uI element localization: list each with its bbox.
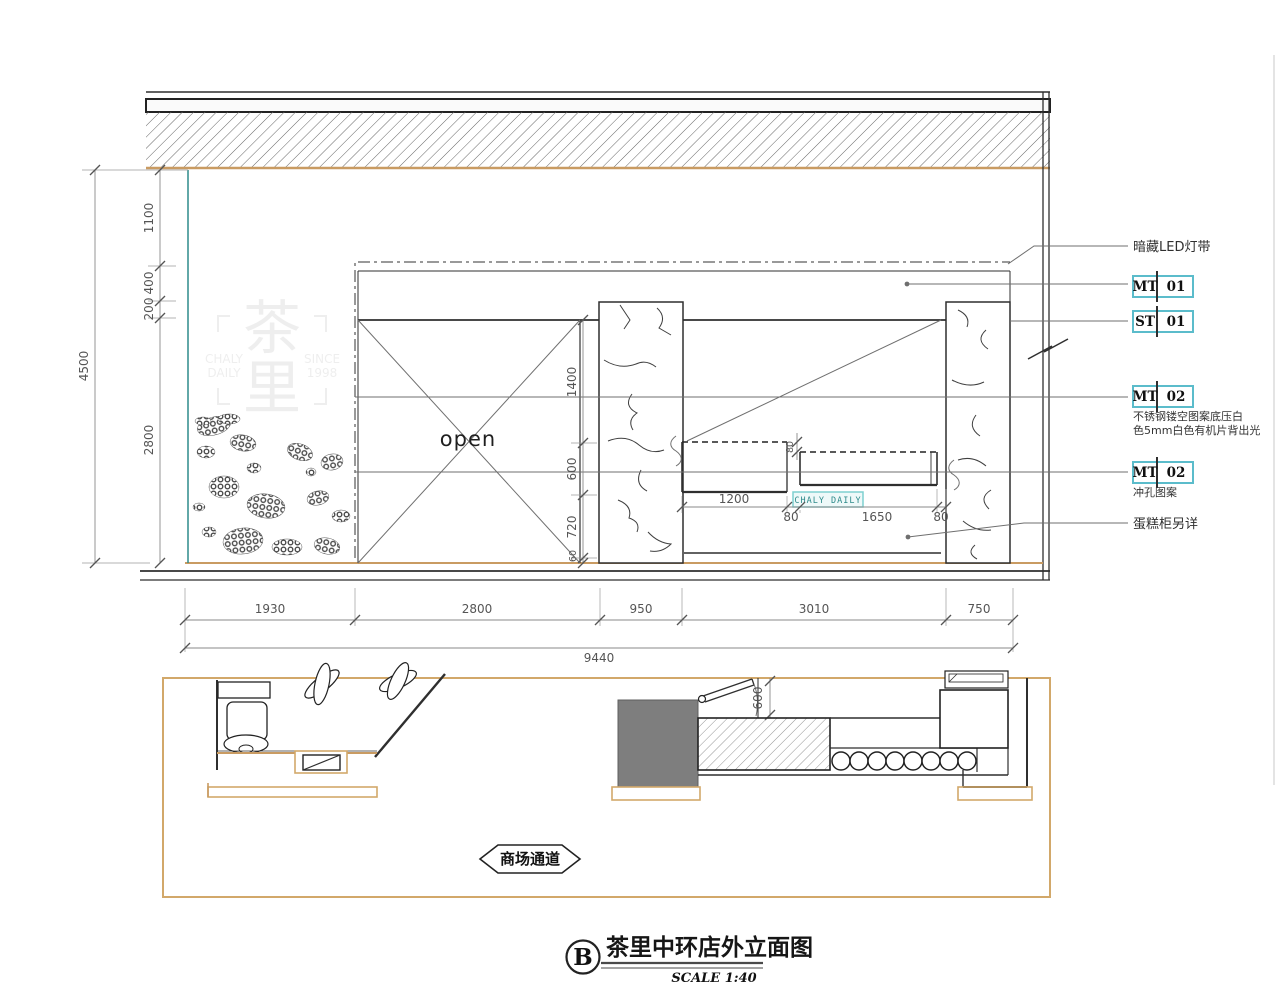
svg-text:1650: 1650 xyxy=(862,510,893,524)
watermark-char-top: 茶 xyxy=(243,294,301,362)
ceiling-beam xyxy=(146,92,1050,168)
plan-counter-hatched xyxy=(698,718,830,770)
svg-text:01: 01 xyxy=(1167,314,1186,330)
stone-wall-pattern xyxy=(193,413,350,557)
svg-text:80: 80 xyxy=(783,510,798,524)
svg-text:400: 400 xyxy=(142,272,156,295)
elevation-and-plan-svg: 茶 里 CHALY DAILY SINCE 1998 xyxy=(0,0,1280,996)
plan-table xyxy=(218,682,270,698)
title-block: B 茶里中环店外立面图 SCALE 1:40 xyxy=(567,934,814,986)
floor-lines xyxy=(140,563,1050,580)
tag-mt-01: MT 01 xyxy=(1133,271,1194,302)
bottom-dim-chains: 1930 2800 950 3010 750 9440 xyxy=(180,588,1018,665)
mt02b-note: 冲孔图案 xyxy=(1133,485,1177,499)
architectural-drawing-sheet: 茶 里 CHALY DAILY SINCE 1998 xyxy=(0,0,1280,996)
break-symbol xyxy=(1028,339,1068,359)
svg-text:750: 750 xyxy=(968,602,991,616)
watermark-right1: SINCE xyxy=(304,352,340,366)
sign-chaly-daily: CHALY DAILY xyxy=(793,492,863,507)
svg-text:2800: 2800 xyxy=(142,425,156,456)
led-annotation: 暗藏LED灯带 xyxy=(1133,240,1210,255)
watermark-left2: DAILY xyxy=(207,366,241,380)
watermark-left1: CHALY xyxy=(205,352,244,366)
marble-column-left xyxy=(599,302,683,563)
tag-mt-02-b: MT 02 冲孔图案 xyxy=(1133,457,1194,499)
svg-text:1200: 1200 xyxy=(719,492,750,506)
plan-view: 600 xyxy=(163,660,1050,897)
chaly-watermark-logo: 茶 里 CHALY DAILY SINCE 1998 xyxy=(205,294,340,422)
svg-text:MT: MT xyxy=(1133,465,1158,481)
mid-dim-chain: 1400 600 720 60 xyxy=(565,315,597,568)
svg-text:3010: 3010 xyxy=(799,602,830,616)
svg-text:60: 60 xyxy=(568,550,579,562)
sign-label: CHALY DAILY xyxy=(794,496,861,506)
svg-text:600: 600 xyxy=(565,458,579,481)
svg-text:1930: 1930 xyxy=(255,602,286,616)
svg-text:商场通道: 商场通道 xyxy=(500,850,560,868)
cake-cabinet-annotation: 蛋糕柜另详 xyxy=(1133,517,1198,532)
dim-left-total: 4500 xyxy=(77,351,91,382)
svg-text:1100: 1100 xyxy=(142,203,156,234)
tag-mt-02-a: MT 02 不锈钢镂空图案底压白 色5mm白色有机片背出光 xyxy=(1133,381,1261,437)
mt02-note-2: 色5mm白色有机片背出光 xyxy=(1133,423,1260,437)
corridor-label: 商场通道 xyxy=(480,845,580,873)
svg-text:80: 80 xyxy=(785,441,796,453)
marble-column-right xyxy=(946,302,1010,563)
drawing-scale: SCALE 1:40 xyxy=(671,971,756,986)
tag-st-01: ST 01 xyxy=(1133,306,1193,337)
svg-text:720: 720 xyxy=(565,516,579,539)
svg-text:200: 200 xyxy=(142,298,156,321)
plan-cake-cabinet-block xyxy=(618,700,698,787)
watermark-char-bottom: 里 xyxy=(243,354,301,422)
svg-text:2800: 2800 xyxy=(462,602,493,616)
svg-text:ST: ST xyxy=(1135,314,1155,330)
drawing-title: 茶里中环店外立面图 xyxy=(606,934,813,961)
counter: 80 CHALY DAILY 1200 80 1650 80 xyxy=(671,433,960,553)
left-dim-chains: 4500 1100 400 200 2800 xyxy=(77,165,188,568)
svg-text:MT: MT xyxy=(1133,279,1158,295)
watermark-right2: 1998 xyxy=(307,366,338,380)
dim-bottom-total: 9440 xyxy=(584,651,615,665)
svg-text:1400: 1400 xyxy=(565,367,579,398)
mt02-note-1: 不锈钢镂空图案底压白 xyxy=(1133,409,1243,423)
open-label: open xyxy=(440,427,496,451)
ceiling-hatch xyxy=(146,112,1050,168)
svg-text:01: 01 xyxy=(1167,279,1186,295)
svg-text:80: 80 xyxy=(933,510,948,524)
svg-text:02: 02 xyxy=(1167,465,1186,481)
title-ref: B xyxy=(573,944,592,971)
plan-chair xyxy=(227,702,267,740)
svg-text:950: 950 xyxy=(630,602,653,616)
svg-text:MT: MT xyxy=(1133,389,1158,405)
svg-text:600: 600 xyxy=(751,687,765,710)
svg-text:02: 02 xyxy=(1167,389,1186,405)
